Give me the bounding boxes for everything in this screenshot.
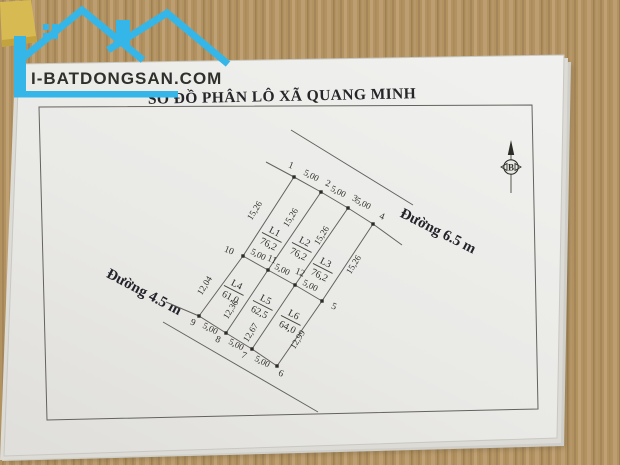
point-dot-11 — [266, 268, 269, 271]
point-dot-8 — [224, 331, 227, 334]
point-dot-1 — [292, 175, 295, 178]
logo-i-stem — [14, 36, 26, 97]
logo-underline — [14, 91, 178, 98]
point-dot-12 — [293, 283, 296, 286]
compass-north-letter: B — [508, 163, 514, 173]
paper-sheet — [4, 55, 564, 456]
point-dot-2 — [319, 190, 322, 193]
brand-text: I-BATDONGSAN.COM — [31, 69, 222, 88]
scanned-plot-photo: SƠ ĐỒ PHÂN LÔ XÃ QUANG MINH Đường 6.5 m … — [0, 0, 620, 465]
logo-chimney-icon — [116, 20, 130, 46]
point-dot-9 — [197, 314, 200, 317]
point-dot-6 — [275, 364, 278, 367]
point-dot-3 — [346, 206, 349, 209]
photo-canvas: SƠ ĐỒ PHÂN LÔ XÃ QUANG MINH Đường 6.5 m … — [0, 0, 620, 465]
point-dot-10 — [241, 254, 244, 257]
point-dot-5 — [320, 299, 323, 302]
point-dot-4 — [371, 222, 374, 225]
point-dot-7 — [250, 347, 253, 350]
